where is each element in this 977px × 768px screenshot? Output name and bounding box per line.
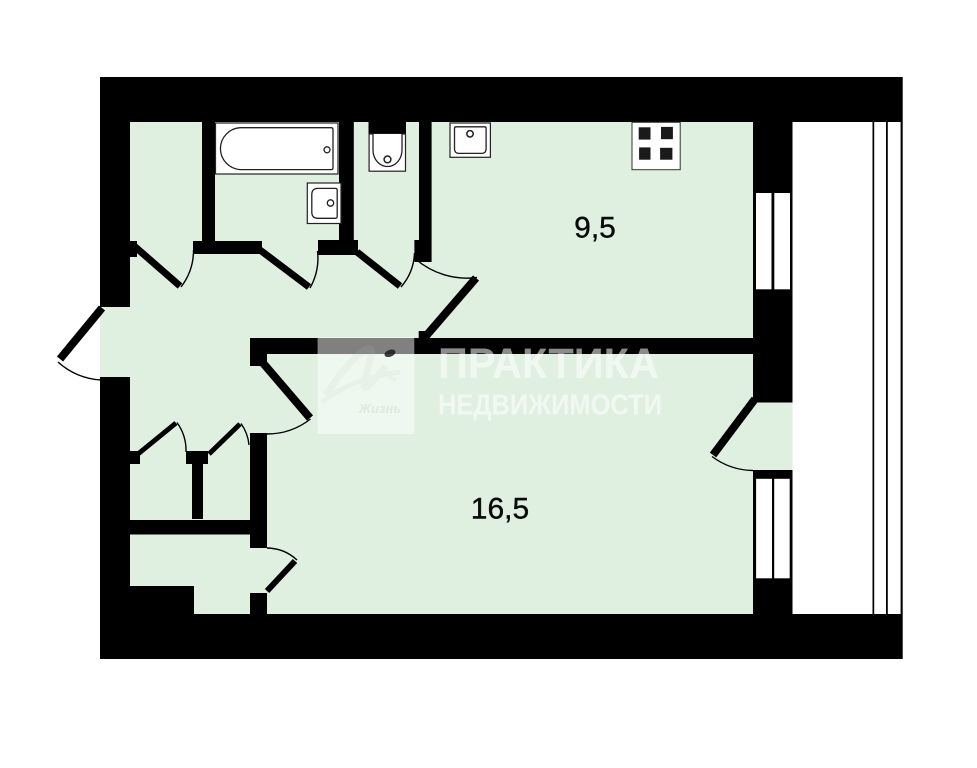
svg-text:9,5: 9,5 [574, 212, 616, 245]
svg-text:Жизнь: Жизнь [358, 401, 401, 416]
svg-text:16,5: 16,5 [471, 493, 529, 526]
svg-text:НЕДВИЖИМОСТИ: НЕДВИЖИМОСТИ [438, 390, 662, 422]
svg-text:ПРАКТИКА: ПРАКТИКА [438, 340, 659, 388]
